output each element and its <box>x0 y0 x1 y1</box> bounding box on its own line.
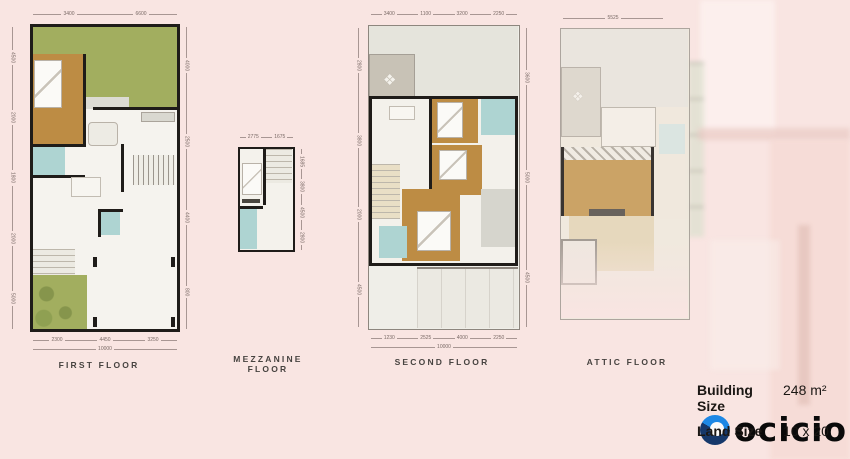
bed <box>242 163 262 195</box>
bed <box>439 150 467 180</box>
bathroom-area <box>240 209 257 249</box>
dimension-strip-bottom-total: 10000 <box>371 343 517 351</box>
wall <box>121 144 124 192</box>
plan-title: MEZZANINE FLOOR <box>228 354 308 374</box>
dining-table <box>88 122 118 146</box>
desk <box>242 199 260 203</box>
dimension-label: 4500 <box>356 282 361 297</box>
dimension-label: 4500 <box>299 205 304 220</box>
dimension-label: 3800 <box>356 133 361 148</box>
dimension-label: 4400 <box>184 210 189 225</box>
front-garden-area <box>33 275 87 329</box>
dimension-strip-bottom: 230044503250 <box>33 336 177 344</box>
wall <box>93 107 177 110</box>
wall <box>33 144 85 147</box>
first-floor-drawing <box>30 24 180 332</box>
wall <box>98 209 123 212</box>
balcony-table-icon: ❖ <box>383 73 396 88</box>
land-size-value: 10 x 20 <box>783 423 829 439</box>
dimension-label: 1685 <box>299 154 304 169</box>
dimension-label: 1230 <box>382 336 397 341</box>
dimension-label: 4000 <box>455 336 470 341</box>
dimension-label: 2000 <box>356 207 361 222</box>
dimension-label: 3400 <box>382 12 397 17</box>
dimension-strip-bottom-total: 10000 <box>33 345 177 353</box>
attic-room <box>601 107 656 147</box>
dimension-strip-top: 34006600 <box>33 10 177 18</box>
powder-room-area <box>101 212 120 235</box>
staircase <box>133 155 175 185</box>
dimension-label: 4500 <box>524 270 529 285</box>
first-floor-plan: 34006600 45002000180020005000 4000250044… <box>4 8 194 374</box>
dimension-strip-left: 45002000180020005000 <box>8 27 16 329</box>
kitchen-counter <box>141 112 175 122</box>
void-hatch <box>561 147 654 160</box>
dimension-strip-right: 400025004400800 <box>182 27 190 329</box>
floor-plan-presentation: 34006600 45002000180020005000 4000250044… <box>0 0 850 459</box>
dimension-strip-right: 1685380045002800 <box>297 149 305 250</box>
photo-roof-beam <box>698 128 850 140</box>
second-floor-drawing: ❖ <box>368 25 520 330</box>
dimension-label: 2300 <box>49 338 64 343</box>
bathroom-area <box>659 124 685 154</box>
dimension-label: 2000 <box>10 231 15 246</box>
dimension-strip-top: 3400110032002250 <box>371 10 517 18</box>
mezzanine-drawing <box>238 147 295 252</box>
dimension-label: 2000 <box>10 110 15 125</box>
dimension-label: 2250 <box>491 336 506 341</box>
bed <box>417 211 451 251</box>
building-size-label: Building Size <box>697 382 783 414</box>
dimension-label: 4000 <box>184 58 189 73</box>
photo-wall-lower <box>710 240 780 370</box>
dimension-label: 2525 <box>418 336 433 341</box>
dimension-label: 2250 <box>491 12 506 17</box>
tv-console <box>589 209 625 216</box>
attic-floor-drawing: ❖ <box>560 28 690 320</box>
dimension-label: 5000 <box>10 291 15 306</box>
bed <box>437 102 463 138</box>
dimension-label: 10000 <box>96 347 114 352</box>
dimension-strip-left: 2800380020004500 <box>354 28 362 327</box>
dimension-label: 10000 <box>435 345 453 350</box>
column <box>171 257 175 267</box>
sofa <box>389 106 415 120</box>
plan-title: ATTIC FLOOR <box>548 357 706 367</box>
plan-title: SECOND FLOOR <box>352 357 532 367</box>
photo-post <box>798 225 810 405</box>
attic-floor-plan: 5525 ❖ ATTIC FLOOR <box>548 12 706 372</box>
dimension-label: 1100 <box>418 12 433 17</box>
balcony: ❖ <box>561 67 601 137</box>
wall <box>83 54 86 147</box>
building-size-row: Building Size 248 m² <box>697 382 829 414</box>
dimension-label: 1800 <box>10 170 15 185</box>
mezzanine-floor-plan: 27751675 1685380045002800 MEZZANINE FLOO… <box>228 133 308 372</box>
lower-roof <box>417 267 518 328</box>
fade-overlay <box>561 241 688 318</box>
bathroom-area <box>33 147 65 175</box>
dimension-label: 3800 <box>299 179 304 194</box>
dimension-label: 6600 <box>133 12 148 17</box>
staircase <box>266 149 292 183</box>
dimension-label: 2775 <box>246 135 261 140</box>
column <box>171 317 175 327</box>
balcony-table-icon: ❖ <box>572 90 584 103</box>
wardrobe-area <box>481 189 515 247</box>
second-floor-plan: 3400110032002250 2800380020004500 360050… <box>352 9 532 372</box>
column <box>93 317 97 327</box>
staircase <box>372 164 400 219</box>
bathroom-area <box>379 226 407 258</box>
dimension-label: 4500 <box>10 50 15 65</box>
wall <box>240 206 263 209</box>
wall <box>429 99 432 195</box>
bed <box>34 60 62 108</box>
dimension-label: 2800 <box>299 230 304 245</box>
wall <box>263 149 266 205</box>
sofa <box>71 177 101 197</box>
dimension-label: 3600 <box>524 70 529 85</box>
dimension-label: 800 <box>184 286 189 298</box>
dimension-label: 3200 <box>455 12 470 17</box>
bathroom-area <box>481 99 515 135</box>
photo-wall-panel <box>700 0 775 135</box>
dimension-strip-top: 27751675 <box>240 133 293 141</box>
dimension-strip-right: 360050004500 <box>522 28 530 327</box>
wall <box>98 209 101 237</box>
plan-title: FIRST FLOOR <box>4 360 194 370</box>
dimension-label: 2800 <box>356 58 361 73</box>
dimension-strip-bottom: 1230252540002250 <box>371 334 517 342</box>
dimension-label: 5000 <box>524 170 529 185</box>
family-room-area <box>561 160 654 216</box>
dimension-label: 2500 <box>184 134 189 149</box>
dimension-label: 3400 <box>61 12 76 17</box>
column <box>93 257 97 267</box>
dimension-label: 5525 <box>605 16 620 21</box>
land-size-label: Land Size <box>697 423 783 439</box>
land-size-row: Land Size 10 x 20 <box>697 423 829 439</box>
dimension-label: 3250 <box>145 338 160 343</box>
dimension-label: 4450 <box>97 338 112 343</box>
building-info: Building Size 248 m² Land Size 10 x 20 <box>697 382 829 448</box>
dimension-label: 1675 <box>272 135 287 140</box>
building-size-value: 248 m² <box>783 382 829 414</box>
dimension-strip-top: 5525 <box>563 14 663 22</box>
